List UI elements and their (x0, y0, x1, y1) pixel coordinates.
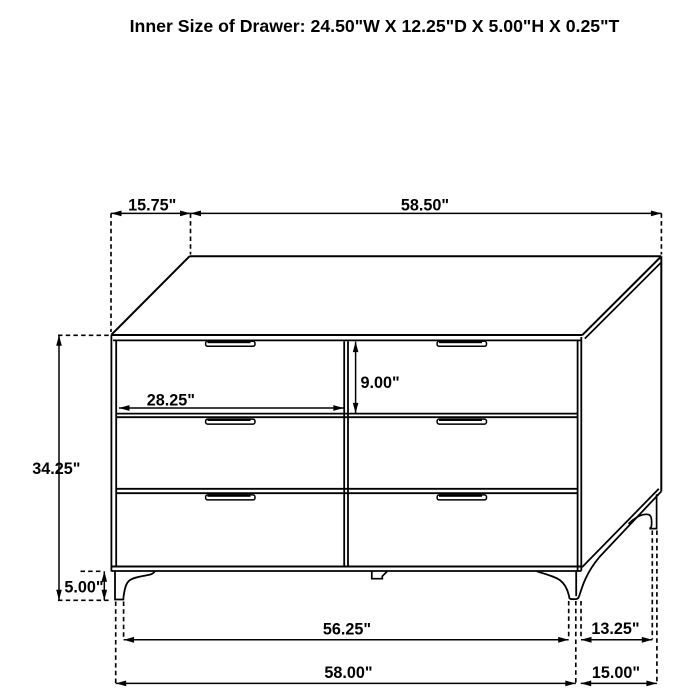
svg-text:28.25": 28.25" (147, 392, 195, 410)
svg-text:15.00": 15.00" (592, 664, 640, 682)
svg-text:13.25": 13.25" (591, 620, 639, 638)
svg-text:58.00": 58.00" (324, 664, 372, 682)
svg-text:15.75": 15.75" (128, 197, 176, 215)
svg-text:56.25": 56.25" (323, 620, 371, 638)
svg-text:34.25": 34.25" (32, 460, 80, 478)
svg-text:9.00": 9.00" (361, 374, 400, 392)
svg-text:58.50": 58.50" (401, 197, 449, 215)
svg-text:5.00": 5.00" (64, 579, 103, 597)
svg-text:Inner Size of Drawer: 24.50"W: Inner Size of Drawer: 24.50"W X 12.25"D … (130, 16, 620, 36)
